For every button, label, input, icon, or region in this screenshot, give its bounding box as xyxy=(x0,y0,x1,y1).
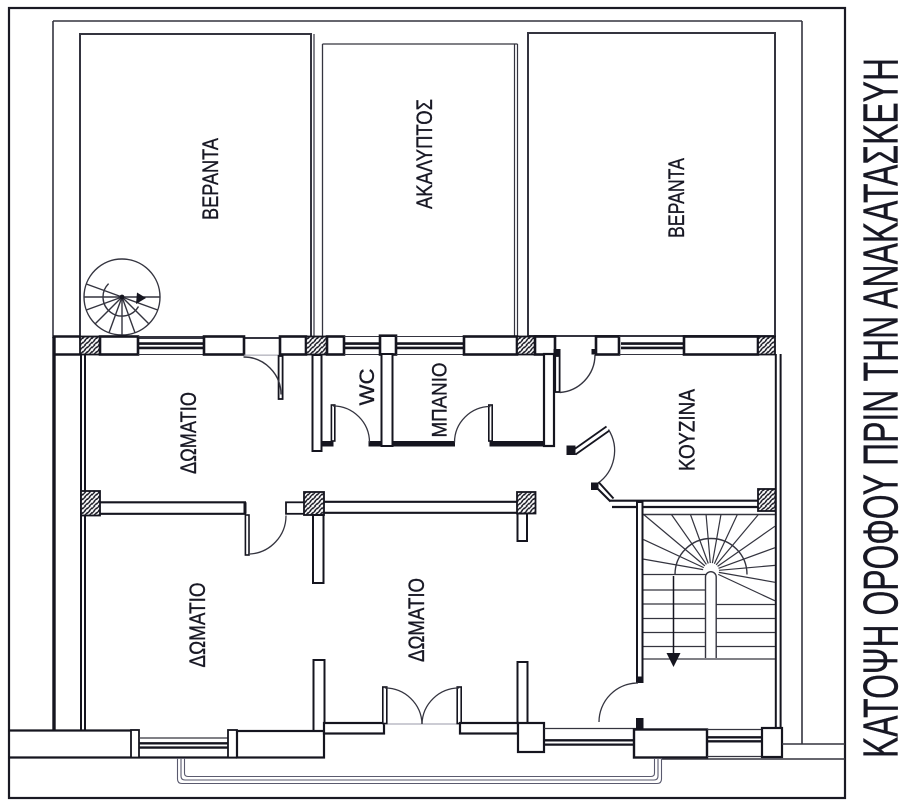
svg-text:ΚΟΥΖΙΝΑ: ΚΟΥΖΙΝΑ xyxy=(675,389,700,471)
svg-text:ΔΩΜΑΤΙΟ: ΔΩΜΑΤΙΟ xyxy=(176,392,201,474)
svg-text:ΒΕΡΑΝΤΑ: ΒΕΡΑΝΤΑ xyxy=(198,138,223,220)
svg-text:ΑΚΑΛΥΠΤΟΣ: ΑΚΑΛΥΠΤΟΣ xyxy=(412,99,437,209)
svg-text:ΔΩΜΑΤΙΟ: ΔΩΜΑΤΙΟ xyxy=(185,583,210,668)
svg-text:WC: WC xyxy=(356,369,379,406)
svg-text:ΜΠΑΝΙΟ: ΜΠΑΝΙΟ xyxy=(429,363,452,438)
svg-text:ΔΩΜΑΤΙΟ: ΔΩΜΑΤΙΟ xyxy=(404,578,429,662)
svg-text:ΚΑΤΟΨΗ ΟΡΟΦΟΥ ΠΡΙΝ ΤΗΝ ΑΝΑΚΑΤΑ: ΚΑΤΟΨΗ ΟΡΟΦΟΥ ΠΡΙΝ ΤΗΝ ΑΝΑΚΑΤΑΣΚΕΥΗ xyxy=(855,58,899,758)
svg-text:ΒΕΡΑΝΤΑ: ΒΕΡΑΝΤΑ xyxy=(664,158,689,238)
